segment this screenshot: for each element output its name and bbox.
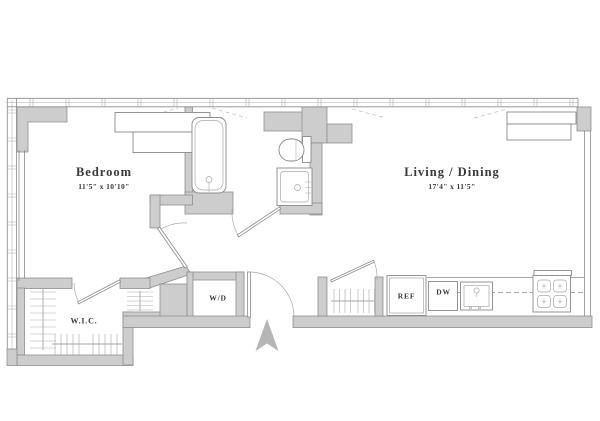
wall-bedroom-west-lines [19, 150, 25, 281]
wall-nw-corner [17, 107, 67, 152]
north-arrow-icon [256, 319, 279, 351]
bedroom-dimensions: 11'5" x 10'10" [78, 182, 129, 191]
wall-closet-left [318, 277, 327, 316]
wall-bedroom-east [150, 195, 160, 228]
wic-rod-nook [127, 291, 153, 311]
wall-ne-corner [577, 107, 591, 131]
bedroom-door [158, 223, 188, 268]
bedroom-label: Bedroom [76, 165, 132, 179]
left-window-band [7, 98, 16, 352]
stove [533, 271, 572, 313]
dishwasher-label: DW [436, 288, 451, 297]
bathroom-vanity-sink [277, 168, 312, 206]
wall-hall-bottom [123, 316, 250, 328]
entry-closet-rod [331, 289, 375, 313]
bathroom-door [232, 207, 281, 237]
wic-label: W.I.C. [71, 317, 98, 326]
kitchen-sink [461, 282, 493, 310]
washer-dryer-label: W/D [209, 294, 226, 303]
refrigerator-label: REF [398, 292, 415, 301]
living-convector [507, 112, 576, 140]
wall-wic-left [17, 288, 25, 355]
wic-rod-bottom [52, 334, 122, 356]
wic-door [74, 280, 121, 304]
wall-wd-left [187, 272, 193, 317]
wall-wd-right [236, 272, 244, 317]
wall-wic-top-right [120, 278, 150, 289]
floor-plan: Bedroom 11'5" x 10'10" Living / Dining 1… [0, 0, 600, 421]
wall-wic-corner [7, 349, 17, 366]
wall-wic-top-left [17, 278, 72, 289]
wall-block-center [160, 284, 187, 317]
entry-closet-door [331, 260, 377, 282]
wall-wic-bottom [17, 355, 133, 366]
wall-living-east-lines [585, 131, 591, 316]
entry-door [247, 272, 294, 317]
wall-wd-top [187, 272, 244, 280]
wall-living-nw-step [327, 124, 352, 143]
living-dining-dimensions: 17'4" x 11'5" [428, 182, 475, 191]
wall-closet-right [375, 277, 383, 316]
living-dining-label: Living / Dining [404, 165, 500, 179]
wic-rod-left [30, 289, 56, 350]
top-window-band [7, 98, 578, 107]
toilet [279, 137, 311, 163]
wall-kitchen-bottom [293, 316, 592, 328]
bathtub [192, 118, 226, 194]
